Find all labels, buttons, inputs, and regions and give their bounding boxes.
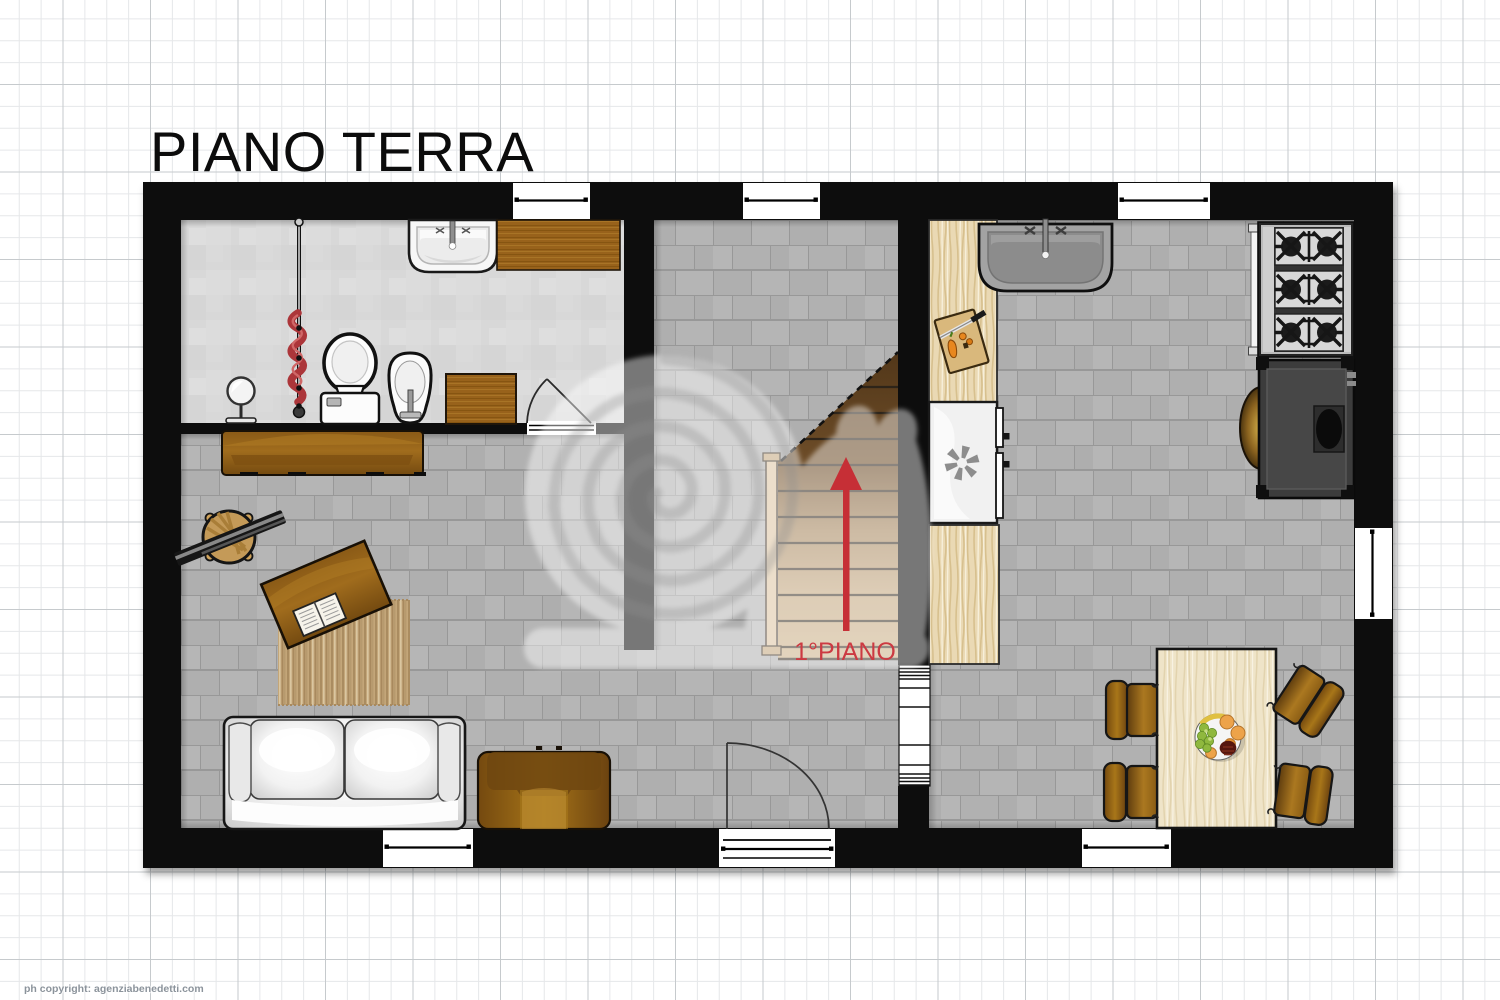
svg-text:1°PIANO: 1°PIANO xyxy=(794,638,896,666)
